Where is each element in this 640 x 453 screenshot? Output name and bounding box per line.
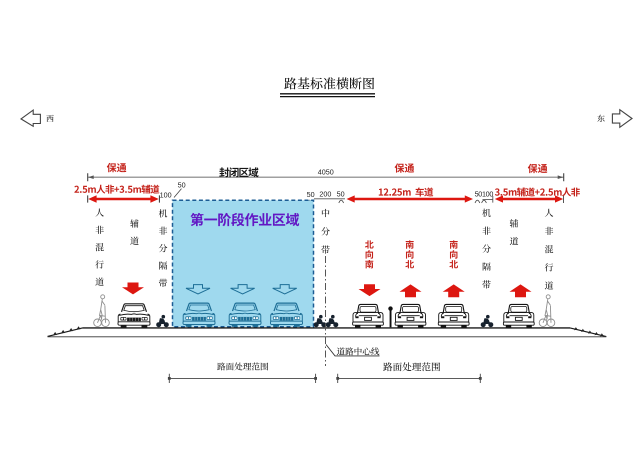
svg-text:50100: 50100 <box>475 190 494 199</box>
svg-text:50: 50 <box>337 190 345 199</box>
svg-text:200: 200 <box>319 190 331 199</box>
svg-text:50: 50 <box>178 181 186 190</box>
svg-text:50: 50 <box>307 190 315 199</box>
svg-text:4050: 4050 <box>318 168 334 177</box>
svg-text:100: 100 <box>160 191 172 200</box>
